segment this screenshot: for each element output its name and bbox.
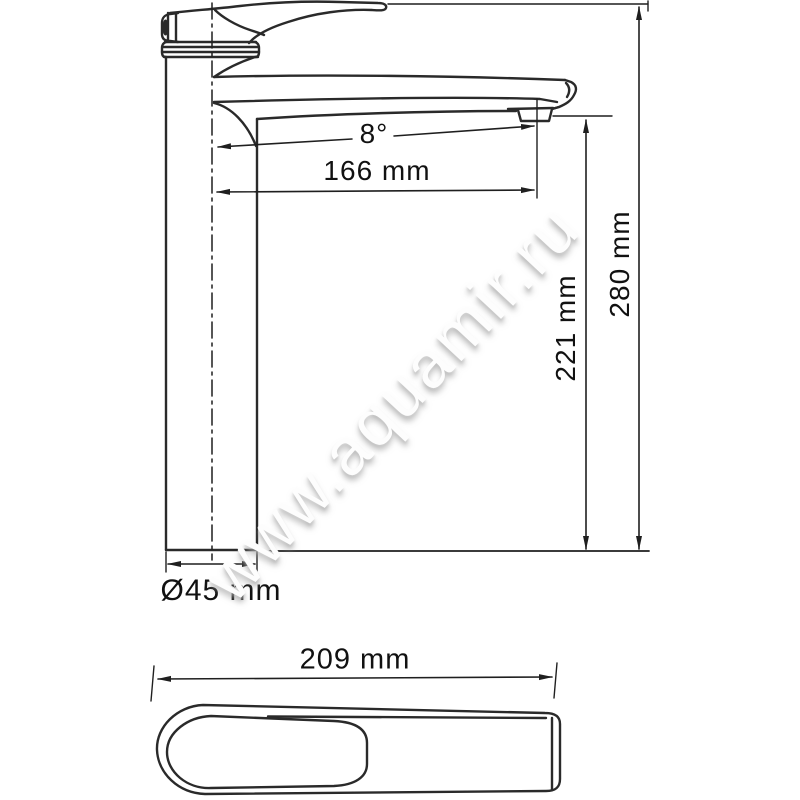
base-diameter-label: Ø45 mm <box>160 576 281 606</box>
overall-length-label: 209 mm <box>300 646 411 675</box>
reach-dim-line <box>217 190 534 192</box>
length-extension-left <box>151 666 154 701</box>
collar-rings <box>162 42 259 57</box>
spout-top-edge <box>214 76 565 80</box>
angle-line-right <box>394 126 534 136</box>
outlet-height-label: 221 mm <box>552 274 580 381</box>
spout-shoulder-curve <box>214 57 255 77</box>
spout-end-face <box>552 80 576 109</box>
handle-lever <box>170 2 386 43</box>
faucet-side-view <box>162 2 576 550</box>
length-dim-line <box>158 677 552 679</box>
spout-end-inner-line <box>566 83 569 97</box>
top-view-handle-outline <box>167 716 367 788</box>
overall-height-label: 280 mm <box>606 210 634 317</box>
spout-reach-label: 166 mm <box>323 157 430 185</box>
top-view-edge-line <box>268 717 546 719</box>
spout-angle-label: 8° <box>360 120 389 148</box>
length-extension-right <box>554 663 557 698</box>
spout-underside-fillet <box>214 103 256 146</box>
drawing-canvas: 8° 166 mm 221 mm 280 mm Ø45 mm 209 mm ww… <box>0 0 800 800</box>
aerator <box>508 107 559 121</box>
technical-drawing <box>0 0 800 800</box>
faucet-top-view <box>157 705 560 794</box>
angle-line-left <box>218 139 352 147</box>
handle-lever-inner-line <box>215 10 264 35</box>
spout-mid-line <box>214 98 557 102</box>
